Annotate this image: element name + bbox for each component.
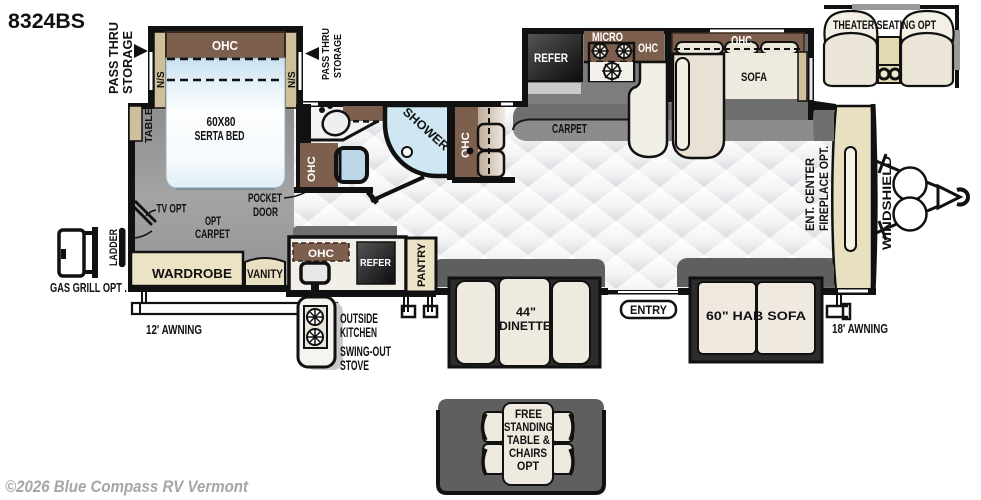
svg-text:N/S: N/S — [156, 71, 167, 88]
svg-text:FREE: FREE — [515, 409, 542, 421]
svg-text:OHC: OHC — [731, 34, 752, 48]
svg-text:REFER: REFER — [360, 257, 391, 269]
svg-text:TV OPT: TV OPT — [157, 204, 187, 216]
svg-text:OUTSIDE: OUTSIDE — [340, 311, 378, 326]
svg-text:OHC: OHC — [638, 41, 658, 55]
svg-text:STORAGE: STORAGE — [121, 31, 135, 94]
svg-text:44": 44" — [516, 305, 536, 319]
svg-text:SWING-OUT: SWING-OUT — [340, 344, 391, 359]
svg-text:TABLE &: TABLE & — [507, 435, 550, 447]
svg-text:GAS GRILL OPT .: GAS GRILL OPT . — [50, 281, 127, 295]
svg-text:PASS THRU: PASS THRU — [107, 22, 121, 94]
svg-text:POCKET: POCKET — [248, 193, 282, 205]
svg-text:WARDROBE: WARDROBE — [152, 266, 232, 281]
svg-text:LADDER: LADDER — [108, 229, 120, 266]
svg-text:18' AWNING: 18' AWNING — [832, 322, 888, 336]
svg-text:DINETTE: DINETTE — [499, 319, 551, 333]
svg-text:CHAIRS: CHAIRS — [509, 448, 547, 460]
svg-text:KITCHEN: KITCHEN — [340, 325, 377, 340]
svg-text:DOOR: DOOR — [253, 207, 279, 219]
svg-text:8324BS: 8324BS — [8, 10, 85, 33]
svg-text:FIREPLACE OPT.: FIREPLACE OPT. — [819, 146, 831, 231]
svg-text:WINDSHIELD: WINDSHIELD — [880, 156, 894, 250]
svg-text:STOVE: STOVE — [340, 358, 369, 373]
svg-text:ENT. CENTER: ENT. CENTER — [805, 157, 817, 231]
svg-text:THEATER SEATING OPT: THEATER SEATING OPT — [833, 18, 936, 32]
svg-text:OPT: OPT — [205, 216, 221, 228]
svg-text:N/S: N/S — [287, 71, 298, 88]
svg-text:ENTRY: ENTRY — [630, 305, 667, 317]
svg-text:OHC: OHC — [306, 156, 318, 182]
svg-text:SERTA BED: SERTA BED — [195, 129, 245, 143]
svg-text:CARPET: CARPET — [552, 122, 587, 136]
svg-text:STORAGE: STORAGE — [332, 34, 344, 78]
svg-text:CARPET: CARPET — [195, 229, 230, 241]
svg-text:SOFA: SOFA — [741, 70, 767, 84]
svg-text:REFER: REFER — [534, 51, 568, 65]
svg-text:STANDING: STANDING — [504, 422, 553, 434]
svg-text:60X80: 60X80 — [207, 115, 236, 129]
svg-text:OPT: OPT — [517, 461, 539, 473]
svg-text:PANTRY: PANTRY — [416, 242, 428, 287]
svg-text:OHC: OHC — [212, 38, 239, 53]
svg-text:OHC: OHC — [308, 248, 334, 260]
svg-text:TABLE: TABLE — [143, 108, 155, 143]
svg-text:PASS THRU: PASS THRU — [320, 28, 332, 80]
svg-text:12' AWNING: 12' AWNING — [146, 322, 202, 337]
svg-text:VANITY: VANITY — [247, 269, 283, 281]
svg-text:60" HAB SOFA: 60" HAB SOFA — [706, 309, 806, 323]
svg-text:©2026 Blue Compass RV Vermont: ©2026 Blue Compass RV Vermont — [5, 478, 249, 496]
